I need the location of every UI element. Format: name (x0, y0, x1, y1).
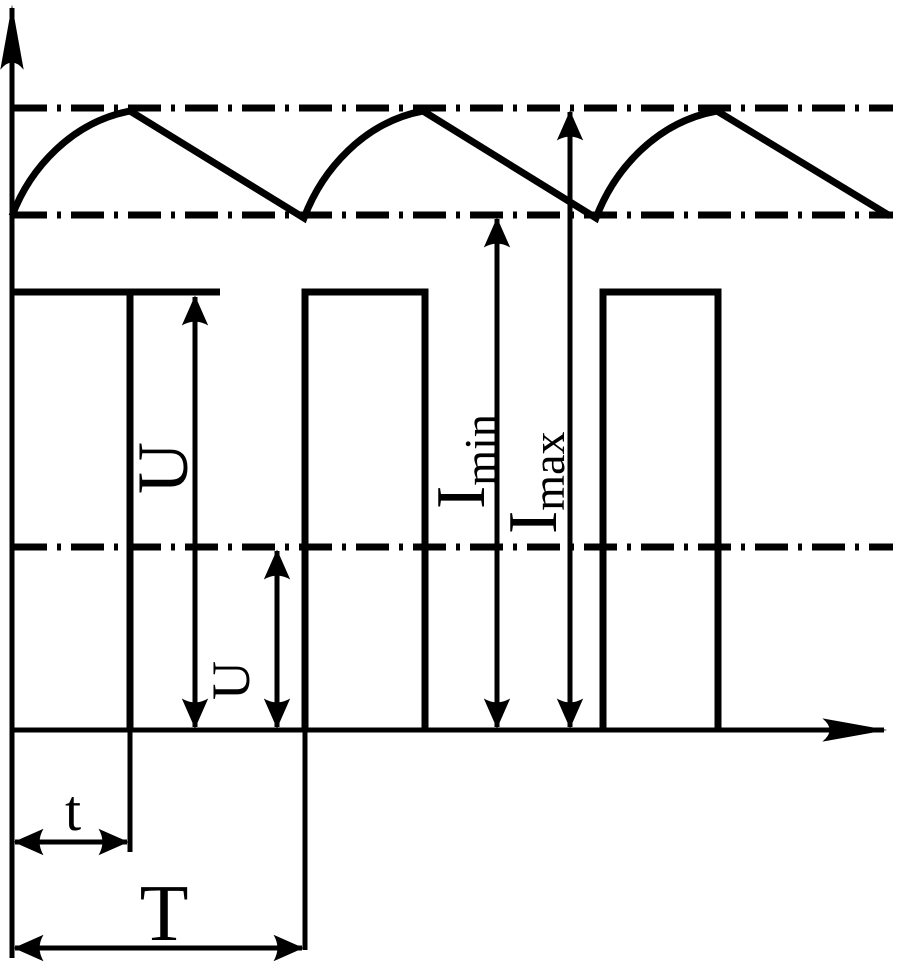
pulse-3 (603, 292, 718, 730)
imin-label-subscript: min (455, 414, 506, 486)
diagram-canvas: U U Imin Imax t T (0, 0, 897, 965)
imax-label-base: I (495, 511, 572, 534)
u-average-label: U (201, 661, 261, 700)
pulse-width-label: t (65, 778, 81, 843)
u-amplitude-label: U (123, 442, 203, 494)
imax-label-subscript: max (523, 431, 574, 510)
pulse-2 (305, 292, 425, 730)
current-ripple-waveform (12, 111, 890, 218)
imin-label: Imin (423, 414, 506, 509)
imin-label-base: I (423, 486, 500, 509)
imax-label: Imax (495, 431, 574, 534)
period-label: T (140, 870, 189, 958)
waveform-diagram: U U Imin Imax t T (0, 0, 897, 965)
